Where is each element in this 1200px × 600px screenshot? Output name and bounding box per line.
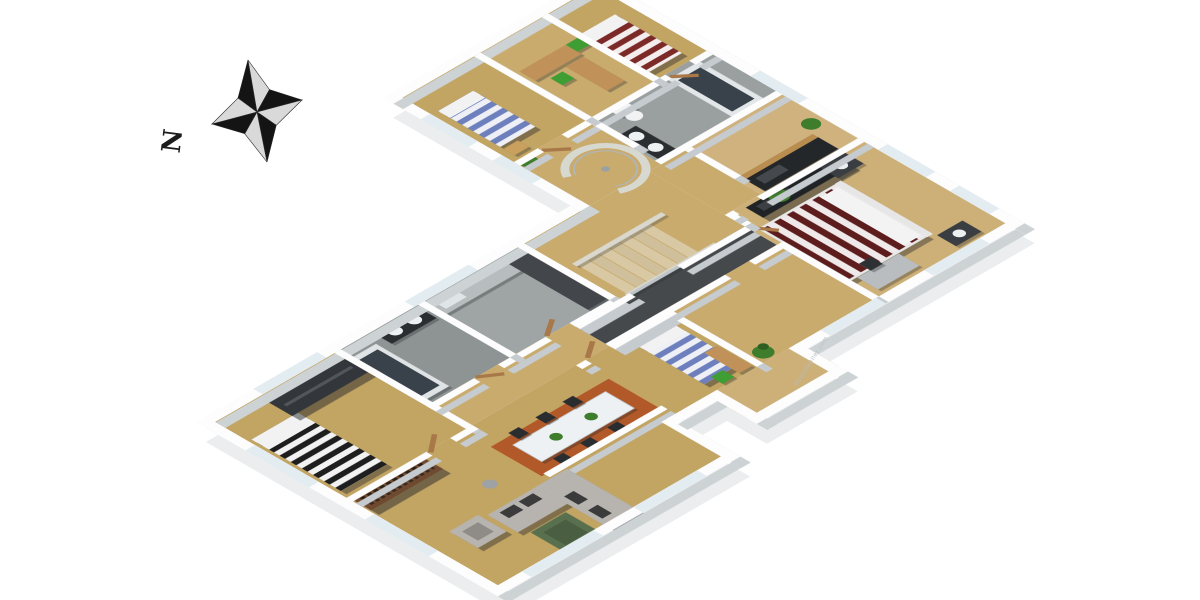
floorplan-scene: N floorplanner.com	[0, 0, 1200, 600]
compass-north-label: N	[157, 127, 190, 154]
compass-star-icon	[212, 60, 302, 162]
compass: N	[157, 60, 302, 162]
floorplan-svg: N floorplanner.com	[0, 0, 1200, 600]
